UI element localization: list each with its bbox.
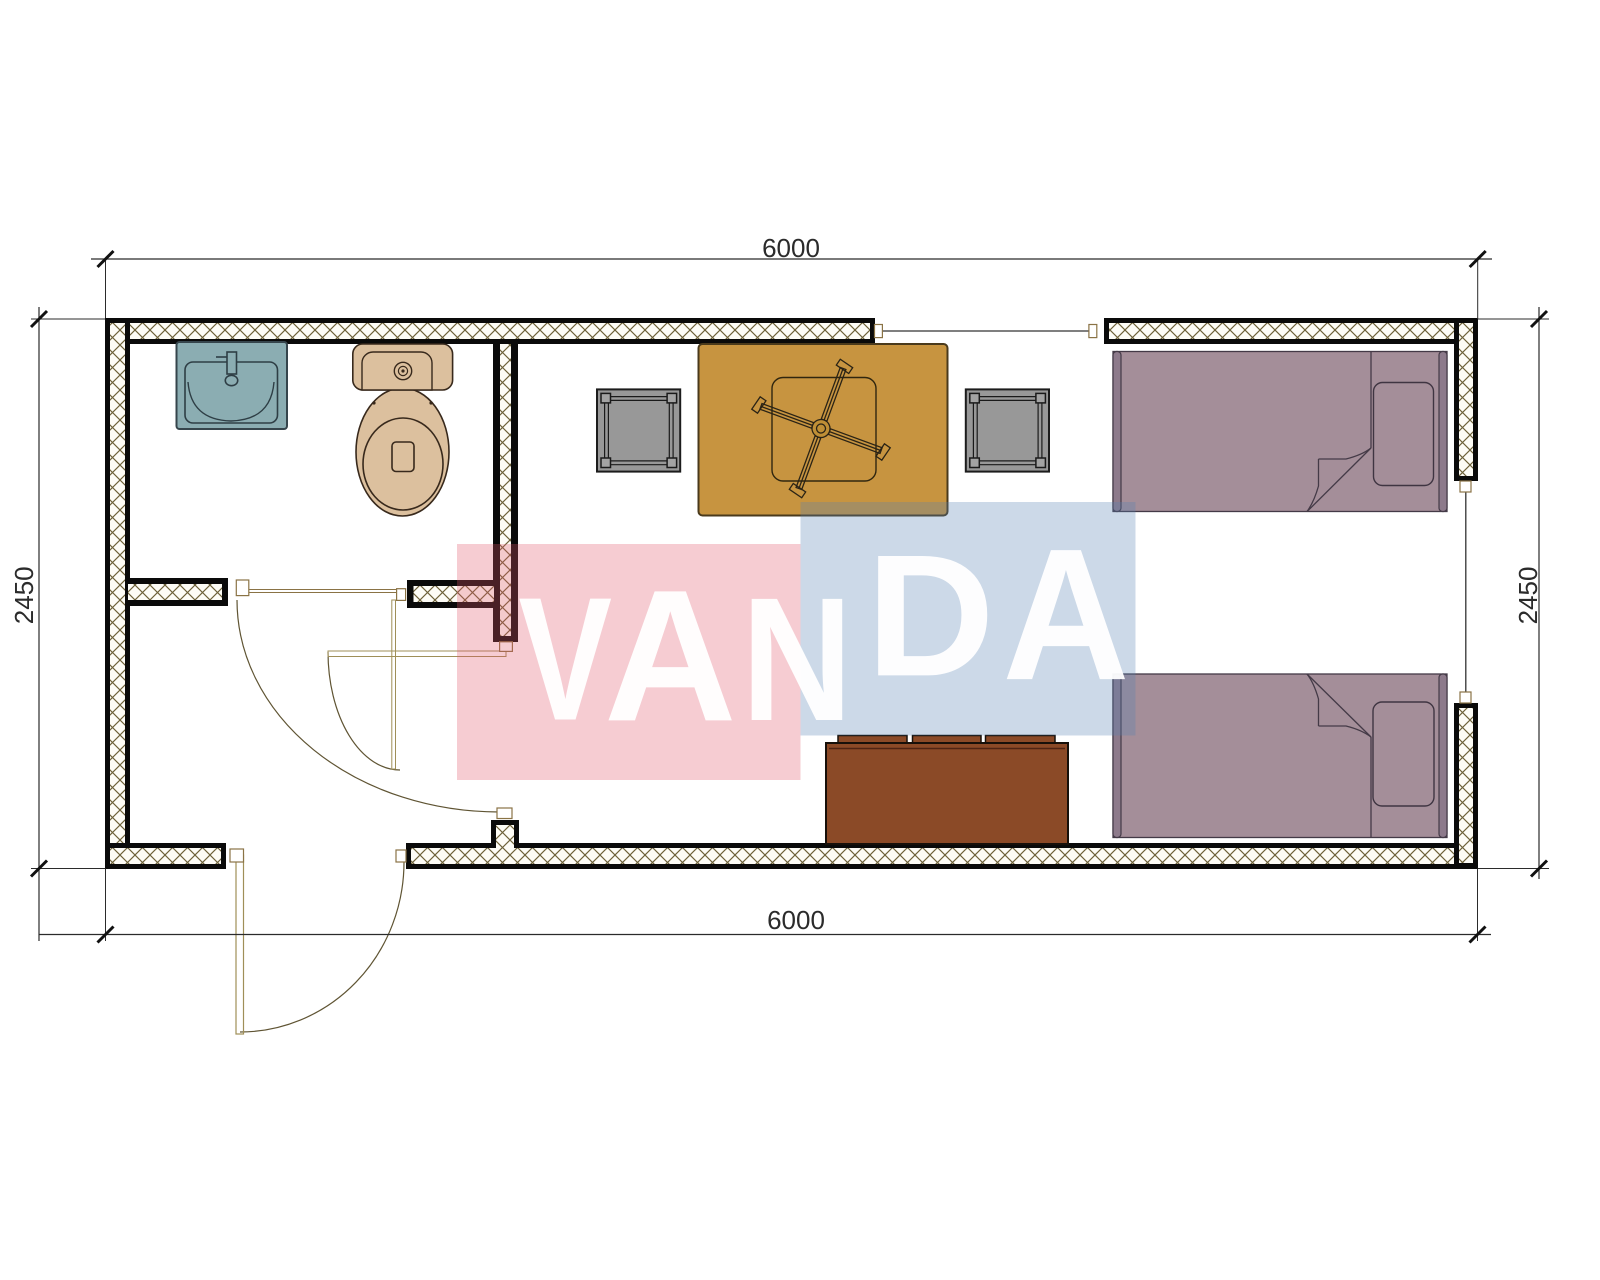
svg-text:A: A <box>604 552 737 761</box>
svg-text:2450: 2450 <box>1513 567 1543 625</box>
svg-text:A: A <box>1002 509 1129 719</box>
svg-text:N: N <box>741 561 852 758</box>
svg-text:2450: 2450 <box>9 566 39 624</box>
svg-text:V: V <box>518 560 612 757</box>
svg-text:6000: 6000 <box>767 905 825 935</box>
svg-text:D: D <box>866 519 994 713</box>
svg-text:6000: 6000 <box>762 233 820 263</box>
